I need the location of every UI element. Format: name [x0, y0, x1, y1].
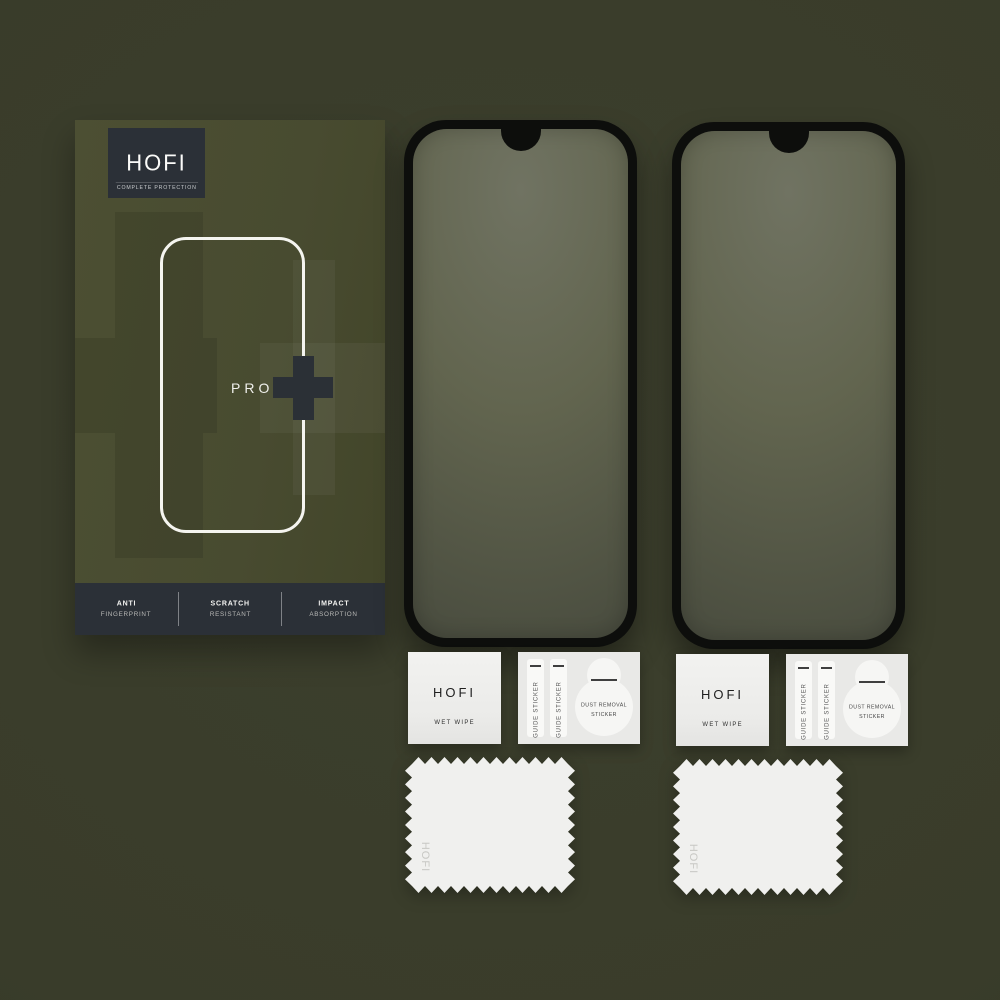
dash-icon [530, 665, 541, 667]
dash-icon [798, 667, 809, 669]
feature-line2: RESISTANT [209, 611, 250, 619]
brand-logo: HOFI [433, 685, 476, 700]
dust-removal-label: DUST REMOVAL STICKER [578, 701, 631, 719]
cloth-watermark: HOFI [687, 833, 699, 885]
guide-sticker: GUIDE STICKER [818, 661, 835, 739]
protector-kit-1: HOFI WET WIPE GUIDE STICKER GUIDE STICKE… [404, 120, 640, 900]
dust-removal-sticker: DUST REMOVAL STICKER [575, 658, 633, 736]
brand-header: HOFI COMPLETE PROTECTION [108, 128, 205, 198]
wet-wipe-packet: HOFI WET WIPE [408, 652, 501, 744]
protector-kit-2: HOFI WET WIPE GUIDE STICKER GUIDE STICKE… [672, 122, 908, 902]
wet-wipe-label: WET WIPE [434, 719, 474, 726]
dash-icon [821, 667, 832, 669]
dash-icon [553, 665, 564, 667]
brand-logo: HOFI [701, 687, 744, 702]
wet-wipe-label: WET WIPE [702, 721, 742, 728]
feature-scratch-resistant: SCRATCH RESISTANT [179, 598, 282, 620]
microfiber-cloth: HOFI [673, 759, 843, 895]
product-photo: HOFI COMPLETE PROTECTION PRO ANTI FINGER… [0, 0, 1000, 1000]
sticker-card: GUIDE STICKER GUIDE STICKER DUST REMOVAL… [518, 652, 640, 744]
guide-sticker-label: GUIDE STICKER [532, 681, 539, 737]
cross-watermark-icon [75, 338, 115, 433]
brand-logo: HOFI [126, 151, 187, 174]
plus-icon [273, 356, 333, 420]
screen-protector [404, 120, 637, 647]
cloth-watermark: HOFI [419, 831, 431, 883]
guide-sticker: GUIDE STICKER [550, 659, 567, 737]
guide-sticker-label: GUIDE STICKER [823, 683, 830, 739]
dust-removal-label: DUST REMOVAL STICKER [846, 703, 899, 721]
feature-line1: ANTI [117, 599, 137, 608]
dash-icon [591, 679, 617, 681]
tempered-glass [681, 131, 896, 640]
retail-box: HOFI COMPLETE PROTECTION PRO ANTI FINGER… [75, 120, 385, 635]
feature-anti-fingerprint: ANTI FINGERPRINT [75, 598, 178, 620]
microfiber-cloth: HOFI [405, 757, 575, 893]
tempered-glass [413, 129, 628, 638]
guide-sticker: GUIDE STICKER [527, 659, 544, 737]
dash-icon [859, 681, 885, 683]
feature-line2: ABSORPTION [310, 611, 358, 619]
wet-wipe-packet: HOFI WET WIPE [676, 654, 769, 746]
brand-tagline: COMPLETE PROTECTION [115, 182, 197, 190]
feature-bar: ANTI FINGERPRINT SCRATCH RESISTANT IMPAC… [75, 583, 385, 635]
guide-sticker-label: GUIDE STICKER [555, 681, 562, 737]
guide-sticker: GUIDE STICKER [795, 661, 812, 739]
screen-protector [672, 122, 905, 649]
feature-line1: IMPACT [318, 599, 349, 608]
feature-line2: FINGERPRINT [101, 611, 151, 619]
guide-sticker-label: GUIDE STICKER [800, 683, 807, 739]
plus-vertical-bar [293, 356, 314, 420]
model-label: PRO [231, 380, 273, 396]
feature-impact-absorption: IMPACT ABSORPTION [282, 598, 385, 620]
dust-removal-sticker: DUST REMOVAL STICKER [843, 660, 901, 738]
feature-line1: SCRATCH [210, 599, 249, 608]
sticker-card: GUIDE STICKER GUIDE STICKER DUST REMOVAL… [786, 654, 908, 746]
